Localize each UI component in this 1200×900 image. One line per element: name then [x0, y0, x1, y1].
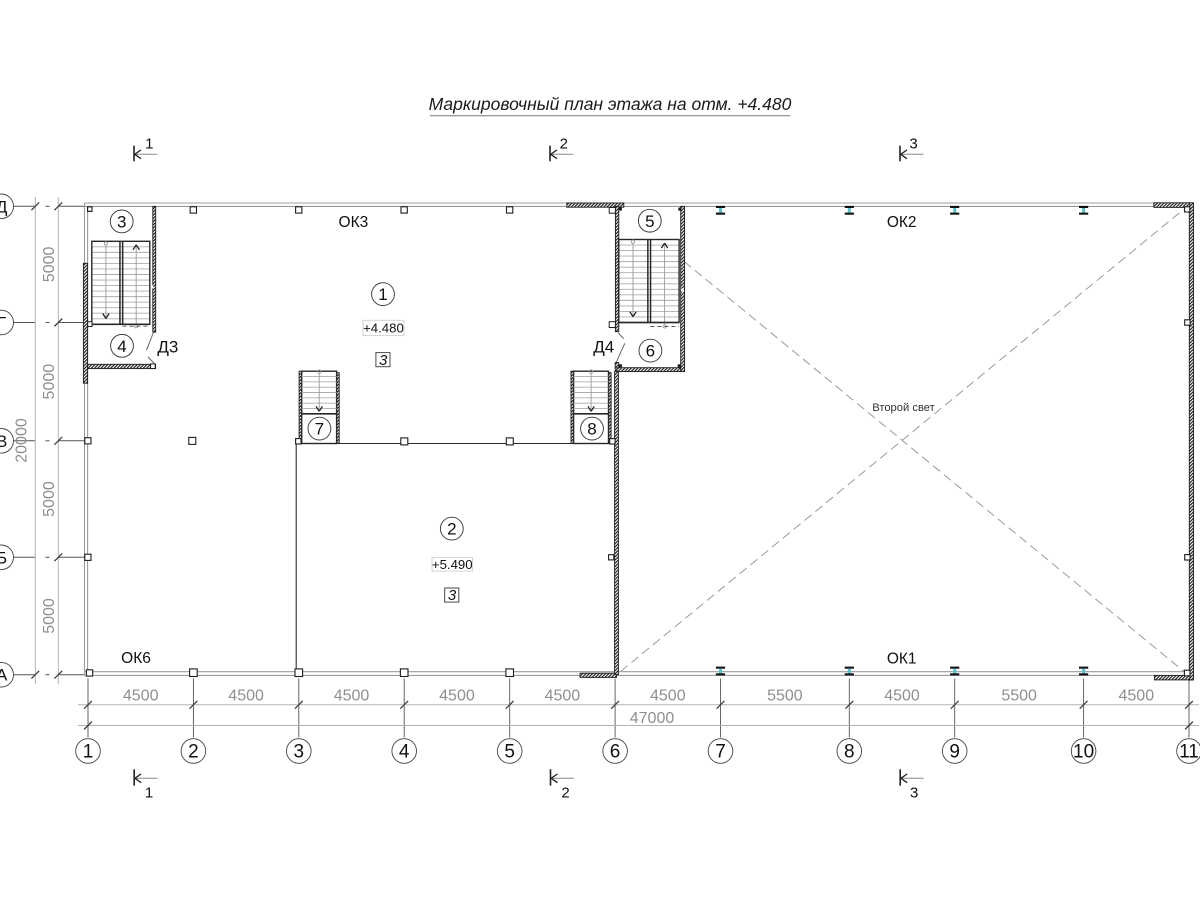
svg-text:5500: 5500 — [767, 688, 803, 705]
svg-text:11: 11 — [1179, 742, 1199, 763]
svg-text:Д3: Д3 — [157, 338, 178, 357]
svg-text:2: 2 — [561, 784, 569, 801]
svg-text:4500: 4500 — [884, 688, 920, 705]
svg-text:20000: 20000 — [14, 418, 31, 463]
svg-text:7: 7 — [715, 742, 726, 763]
svg-text:10: 10 — [1073, 742, 1094, 763]
svg-text:3: 3 — [117, 213, 126, 232]
svg-text:5000: 5000 — [41, 247, 58, 283]
svg-text:2: 2 — [188, 742, 199, 763]
svg-text:ОК6: ОК6 — [121, 650, 151, 667]
svg-text:7: 7 — [315, 420, 324, 439]
svg-text:4: 4 — [399, 742, 410, 763]
svg-text:ОК3: ОК3 — [339, 214, 369, 231]
svg-text:Д4: Д4 — [593, 337, 614, 356]
svg-text:4500: 4500 — [439, 688, 475, 705]
svg-text:3: 3 — [379, 352, 388, 369]
svg-text:4500: 4500 — [334, 688, 370, 705]
svg-text:4500: 4500 — [1119, 688, 1155, 705]
svg-text:Д: Д — [0, 197, 8, 216]
svg-text:5: 5 — [504, 742, 515, 763]
svg-text:4500: 4500 — [123, 688, 159, 705]
svg-text:4500: 4500 — [228, 688, 264, 705]
svg-text:5000: 5000 — [41, 598, 58, 634]
svg-text:1: 1 — [145, 784, 153, 801]
svg-text:Б: Б — [0, 548, 7, 567]
svg-text:3: 3 — [909, 135, 917, 152]
svg-text:5000: 5000 — [41, 481, 58, 517]
svg-text:6: 6 — [646, 342, 655, 361]
svg-text:47000: 47000 — [630, 710, 675, 727]
svg-text:3: 3 — [448, 587, 457, 604]
svg-text:2: 2 — [447, 520, 456, 539]
svg-text:5000: 5000 — [41, 364, 58, 400]
svg-text:Маркировочный план этажа на от: Маркировочный план этажа на отм. +4.480 — [429, 94, 792, 114]
svg-text:9: 9 — [949, 742, 960, 763]
svg-text:3: 3 — [910, 784, 918, 801]
svg-text:5500: 5500 — [1001, 688, 1037, 705]
svg-text:6: 6 — [610, 742, 621, 763]
svg-text:4500: 4500 — [650, 688, 686, 705]
svg-text:2: 2 — [560, 135, 568, 152]
svg-text:ОК2: ОК2 — [887, 214, 917, 231]
svg-text:8: 8 — [587, 420, 596, 439]
svg-text:1: 1 — [83, 742, 94, 763]
svg-text:ОК1: ОК1 — [887, 651, 917, 668]
svg-text:Г: Г — [0, 314, 6, 333]
svg-text:А: А — [0, 666, 8, 685]
svg-text:+4.480: +4.480 — [363, 321, 404, 336]
svg-text:Второй свет: Второй свет — [872, 402, 935, 414]
svg-text:4: 4 — [117, 337, 126, 356]
svg-text:1: 1 — [378, 285, 387, 304]
svg-text:3: 3 — [294, 742, 305, 763]
svg-text:В: В — [0, 432, 7, 451]
svg-text:8: 8 — [844, 742, 855, 763]
svg-text:1: 1 — [145, 135, 153, 152]
svg-text:+5.490: +5.490 — [432, 557, 473, 572]
svg-text:5: 5 — [645, 212, 654, 231]
svg-text:4500: 4500 — [545, 688, 581, 705]
